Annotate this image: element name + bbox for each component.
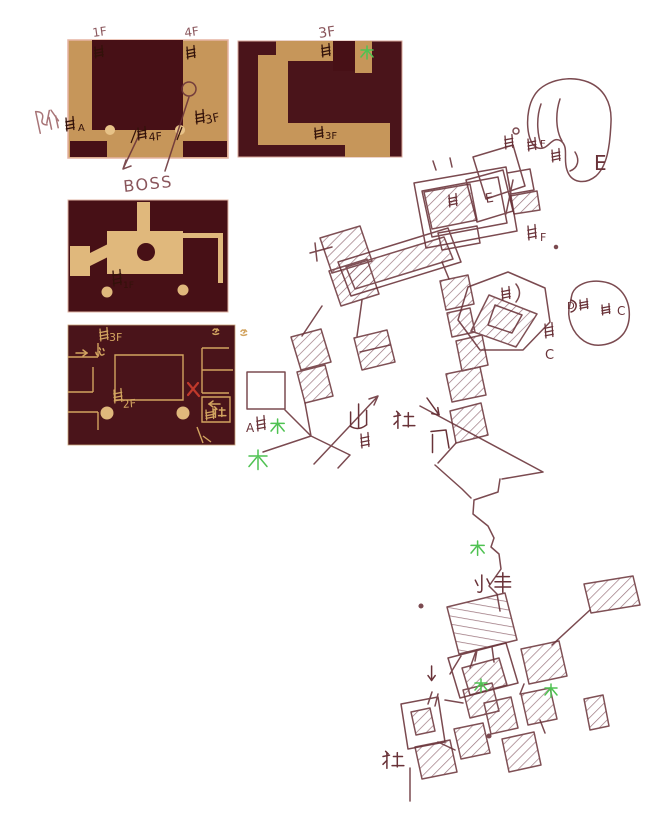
floor-map-3f bbox=[238, 41, 402, 157]
label-stairs-4f: 4F bbox=[148, 130, 162, 144]
feng-character-glyph bbox=[495, 573, 511, 593]
arrow-down-icon-2 bbox=[428, 666, 435, 680]
tree-mark-path bbox=[471, 541, 484, 555]
hatched-room bbox=[415, 740, 457, 779]
hatched-room bbox=[510, 191, 540, 214]
label-map4-stairs-2f: 2F bbox=[122, 397, 136, 411]
label-area-c: C bbox=[545, 348, 554, 363]
map3-dot bbox=[102, 287, 113, 298]
hatched-room bbox=[521, 641, 567, 684]
ladder-icon bbox=[527, 137, 536, 151]
hatched-room bbox=[297, 365, 333, 403]
hatched-room bbox=[584, 695, 609, 730]
map4-dot bbox=[177, 407, 190, 420]
label-area-f: F bbox=[540, 139, 546, 150]
hatched-room bbox=[447, 308, 475, 337]
map2-top-right-corridor bbox=[355, 41, 372, 73]
hatched-room bbox=[454, 723, 490, 759]
ladder-icon bbox=[544, 322, 553, 338]
gate-character-glyph bbox=[431, 430, 449, 453]
label-area-c2: C bbox=[617, 304, 625, 318]
shrine-character-bottom bbox=[383, 751, 404, 768]
map3-left-room bbox=[70, 246, 90, 276]
stairs-character-glyph bbox=[36, 107, 61, 133]
map3-thin-corridor-h bbox=[183, 233, 223, 238]
ladder-icon bbox=[579, 298, 588, 310]
tree-mark-a2 bbox=[249, 450, 267, 470]
map3-top-corridor bbox=[137, 202, 150, 233]
label-area-a: A bbox=[246, 421, 255, 435]
map2-bottom-step bbox=[345, 143, 390, 157]
ladder-icon bbox=[256, 415, 265, 431]
label-area-d: D bbox=[567, 301, 575, 312]
hatched-room bbox=[291, 329, 331, 370]
hatched-room bbox=[411, 708, 435, 735]
ladder-icon bbox=[504, 134, 513, 149]
ladder-icon bbox=[551, 148, 560, 162]
ladder-icon bbox=[601, 303, 610, 315]
map2-bottom-corridor bbox=[258, 123, 390, 145]
map3-pit bbox=[137, 243, 155, 261]
floor-map-2f bbox=[68, 325, 235, 445]
ladder-icon bbox=[360, 432, 369, 448]
ladder-icon bbox=[501, 286, 510, 300]
hatched-room bbox=[462, 658, 507, 695]
sketch-small-circle bbox=[513, 128, 519, 134]
map1-bottom-left-block bbox=[70, 141, 107, 157]
label-map2-stairs-3f: 3F bbox=[325, 131, 337, 142]
label-map1-4f: 4F bbox=[183, 24, 199, 40]
sketch-head-blob-inner bbox=[538, 99, 578, 171]
floor-map-1f bbox=[68, 200, 228, 312]
sketch-dot bbox=[419, 604, 423, 608]
hatched-room bbox=[446, 367, 486, 402]
sketch-canvas: 1F4F3F4F3FABOSS3F1F3F2FEEFFCCDA bbox=[0, 0, 670, 835]
hatched-rooms-layer bbox=[291, 184, 640, 779]
label-map3-stairs-1f: 1F bbox=[123, 281, 134, 291]
label-map4-stairs-3f: 3F bbox=[109, 331, 122, 344]
label-area-f2: F bbox=[540, 231, 546, 244]
map3-dot bbox=[178, 285, 189, 296]
label-stairs-3f: 3F bbox=[204, 110, 221, 127]
sketch-square-room bbox=[247, 372, 285, 409]
tree-mark-a bbox=[271, 419, 284, 433]
map1-bottom-right-block bbox=[183, 141, 227, 157]
label-stairs-a: A bbox=[78, 123, 85, 134]
hatched-room bbox=[440, 275, 474, 310]
hatched-room bbox=[484, 697, 518, 734]
far-character-glyph bbox=[241, 330, 247, 336]
shrine-character-mid bbox=[394, 411, 415, 428]
sketch-dot bbox=[487, 734, 491, 738]
label-area-e2: E bbox=[484, 191, 495, 207]
mountain-character-glyph bbox=[351, 404, 367, 428]
label-area-e: E bbox=[594, 151, 607, 175]
small-character-glyph bbox=[475, 575, 489, 592]
map1-door-bump bbox=[105, 125, 115, 135]
hatched-room bbox=[456, 335, 488, 371]
map2-notch bbox=[333, 41, 355, 71]
label-map1-1f: 1F bbox=[91, 24, 107, 40]
ladder-icon bbox=[527, 224, 536, 240]
hatched-room bbox=[502, 732, 541, 772]
map-sketch-svg: 1F4F3F4F3FABOSS3F1F3F2FEEFFCCDA bbox=[0, 0, 670, 835]
label-boss: BOSS bbox=[122, 172, 173, 196]
hatched-room bbox=[584, 576, 640, 613]
label-map2-3f: 3F bbox=[317, 24, 336, 42]
hatched-room bbox=[354, 330, 395, 370]
hatched-room bbox=[424, 184, 477, 229]
sketch-dot bbox=[555, 246, 558, 249]
map3-thin-corridor-v bbox=[218, 233, 223, 283]
map4-dot bbox=[101, 407, 114, 420]
map1-center-room bbox=[92, 40, 183, 130]
hatched-room bbox=[450, 403, 488, 443]
